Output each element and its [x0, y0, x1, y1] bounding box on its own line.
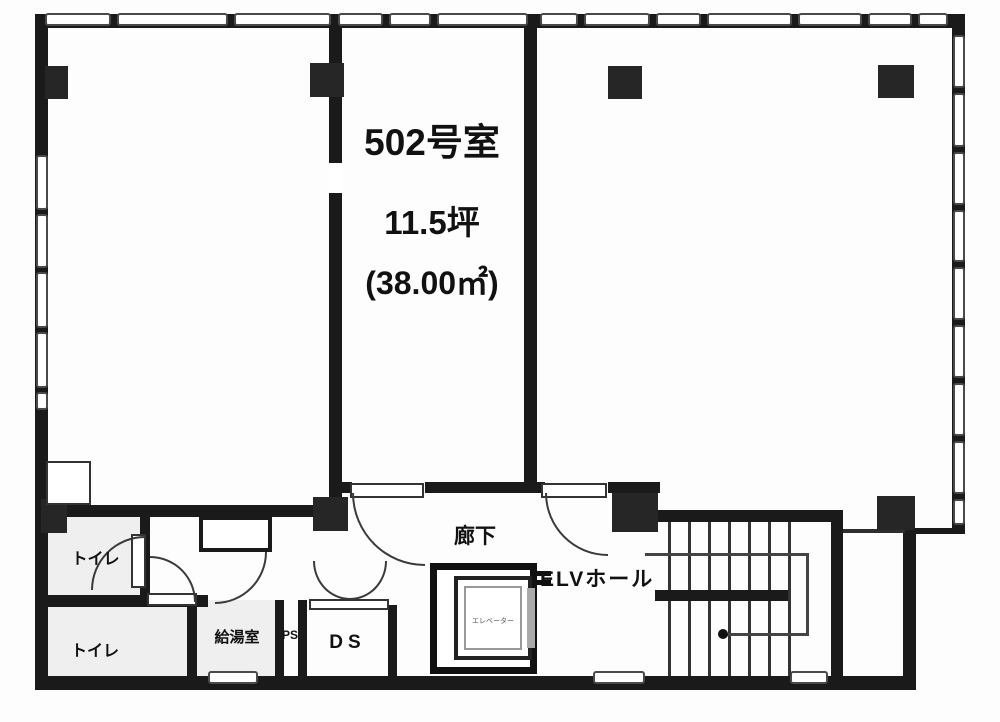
area-tsubo-label: 11.5坪: [332, 196, 532, 244]
wall-toilet-lower-right: [187, 607, 197, 677]
window-segment: [437, 13, 528, 26]
wall-room502-right: [524, 14, 537, 493]
window-segment: [656, 13, 701, 26]
door-arc-room502: [352, 493, 425, 566]
pipe-space-label: PS: [278, 628, 302, 642]
stair-path-top: [645, 553, 808, 556]
window-segment: [540, 13, 578, 26]
window-segment: [953, 152, 965, 205]
stair-path-bottom: [725, 633, 809, 636]
wall-outer-right-lower: [903, 528, 916, 690]
pillar: [612, 493, 658, 532]
window-segment: [953, 35, 965, 88]
pillar: [313, 497, 348, 531]
window-segment: [36, 214, 48, 268]
window-segment: [208, 671, 258, 684]
double-door-arc-right: [350, 561, 387, 600]
window-segment: [868, 13, 912, 26]
double-door-arc-left: [313, 561, 350, 600]
wall-stairs-right: [831, 510, 843, 681]
elevator-hall-label: ELVホール: [540, 563, 670, 593]
window-segment: [36, 155, 48, 210]
pillar: [878, 65, 914, 98]
window-segment: [234, 13, 331, 26]
door-arc-kitchenette: [215, 552, 267, 604]
window-segment: [45, 13, 111, 26]
kitchenette-label: 給湯室: [197, 626, 277, 647]
window-segment: [707, 13, 792, 26]
closet-box: [199, 516, 272, 552]
stair-path-right: [806, 553, 809, 636]
duct-space-label: DS: [307, 632, 388, 654]
window-segment: [117, 13, 228, 26]
door-arc-toilet-lower: [150, 556, 196, 602]
window-segment: [953, 441, 965, 494]
window-segment: [36, 272, 48, 328]
toilet-lower-label: トイレ: [45, 637, 145, 661]
pillar: [877, 496, 915, 530]
window-segment: [790, 671, 828, 684]
wall-stairs-top: [650, 510, 843, 522]
pillar: [310, 63, 344, 97]
pillar: [608, 66, 642, 99]
stair-landing-bar: [655, 590, 788, 601]
window-segment: [593, 671, 645, 684]
wall-leftroom-bottom: [40, 505, 330, 517]
window-segment: [953, 93, 965, 147]
wall-opening: [329, 163, 342, 193]
room-number-label: 502号室: [332, 112, 532, 166]
pillar: [45, 66, 68, 99]
window-segment: [798, 13, 862, 26]
window-segment: [953, 383, 965, 436]
wall-outer-bottom: [35, 676, 916, 690]
window-segment: [953, 499, 965, 525]
window-segment: [953, 267, 965, 320]
counter-box: [46, 461, 91, 505]
stair-tread: [788, 522, 791, 676]
elevator-label: エレベーター: [458, 616, 528, 626]
wall-corridor-top-east: [608, 482, 660, 493]
window-segment: [36, 392, 48, 410]
toilet-upper-label: トイレ: [48, 545, 143, 569]
window-segment: [338, 13, 383, 26]
window-segment: [953, 210, 965, 262]
floor-plan: 502号室 11.5坪 (38.00㎡) 廊下 ELVホール エレベーター DS…: [0, 0, 1000, 722]
corridor-label: 廊下: [425, 520, 525, 550]
stair-path-dot: [718, 629, 728, 639]
wall-ds-right: [388, 605, 397, 677]
window-segment: [918, 13, 948, 26]
window-segment: [953, 325, 965, 378]
window-segment: [584, 13, 650, 26]
area-m2-label: (38.00㎡): [332, 258, 532, 304]
door-arc-right-room: [545, 493, 608, 556]
wall-room502-bottom-east: [425, 482, 524, 493]
double-door-sill: [309, 599, 389, 610]
elevator-door-strip: [527, 588, 535, 648]
window-segment: [36, 332, 48, 388]
window-segment: [389, 13, 431, 26]
